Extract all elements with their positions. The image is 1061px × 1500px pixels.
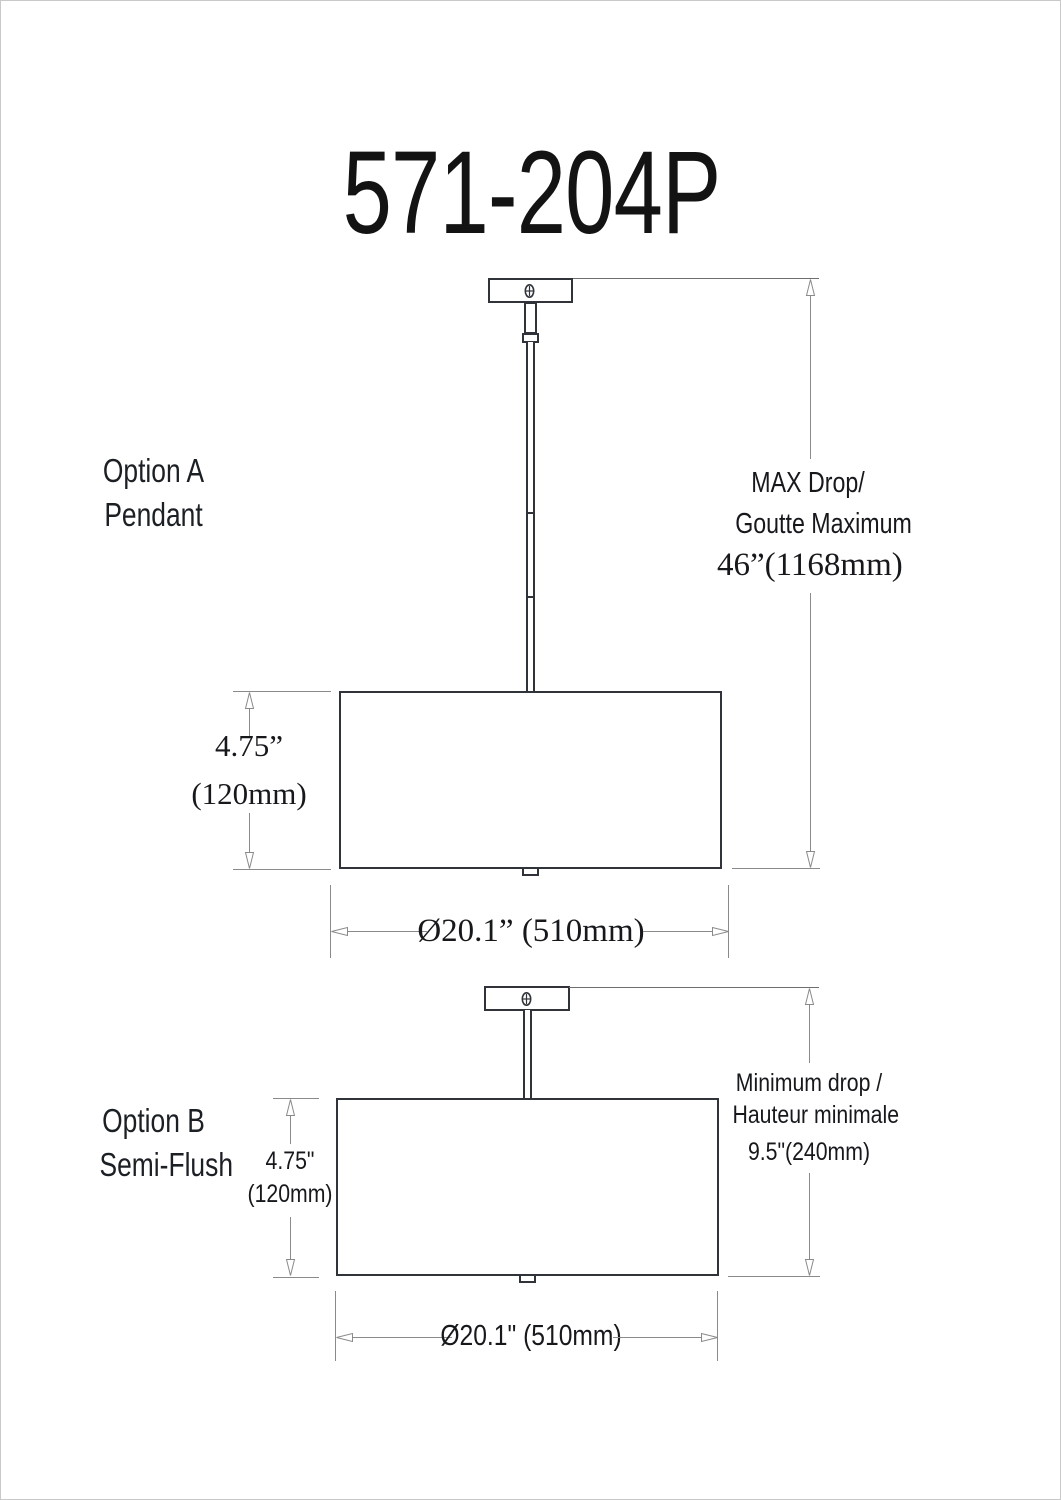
option-a-label-line1: Option A: [100, 449, 208, 493]
extension-line: [335, 1291, 336, 1361]
dimension-line: [810, 593, 811, 853]
dimension-line: [809, 1173, 810, 1259]
extension-line: [273, 1277, 319, 1278]
extension-line: [233, 869, 331, 870]
rod-joint: [526, 596, 535, 598]
arrow-up-icon: [804, 988, 815, 1005]
finial-a: [522, 867, 539, 876]
extension-line: [273, 1098, 319, 1099]
dimension-line: [290, 1116, 291, 1144]
arrow-left-icon: [336, 1332, 353, 1343]
drum-shade-a: [339, 691, 722, 869]
extension-line: [717, 1291, 718, 1361]
extension-line: [330, 885, 331, 958]
arrow-left-icon: [331, 926, 348, 937]
max-drop-value: 46”(1168mm): [717, 547, 899, 584]
model-number-title: 571-204P: [134, 127, 930, 259]
arrow-down-icon: [285, 1259, 296, 1276]
option-a-label: Option A Pendant: [100, 449, 208, 537]
screw-icon: [524, 284, 535, 298]
finial-b: [519, 1274, 536, 1283]
arrow-up-icon: [285, 1099, 296, 1116]
arrow-up-icon: [805, 279, 816, 296]
dimension-line: [249, 813, 250, 853]
rod-joint: [526, 512, 535, 514]
dimension-line: [613, 1337, 703, 1338]
drum-shade-b: [336, 1098, 719, 1276]
dimension-line: [643, 931, 713, 932]
max-drop-line2: Goutte Maximum: [735, 508, 881, 541]
extension-line: [728, 885, 729, 958]
arrow-down-icon: [805, 851, 816, 868]
min-drop-line2: Hauteur minimale: [733, 1101, 886, 1130]
stem-connector-a: [524, 302, 537, 334]
height-dim-b-inches: 4.75": [248, 1147, 333, 1176]
arrow-right-icon: [712, 926, 729, 937]
extension-line: [728, 1276, 820, 1277]
option-b-label-line1: Option B: [100, 1099, 208, 1143]
arrow-up-icon: [244, 692, 255, 709]
arrow-down-icon: [804, 1259, 815, 1276]
dimension-line: [809, 1005, 810, 1063]
option-b-label: Option B Semi-Flush: [100, 1099, 208, 1187]
option-a-label-line2: Pendant: [100, 493, 208, 537]
option-b-label-line2: Semi-Flush: [100, 1143, 208, 1187]
min-drop-line1: Minimum drop /: [733, 1069, 886, 1098]
height-dim-a-mm: (120mm): [189, 776, 309, 812]
extension-line: [732, 868, 820, 869]
height-dim-a-inches: 4.75”: [189, 728, 309, 764]
hang-rod-a: [526, 342, 535, 692]
diameter-dim-b: Ø20.1" (510mm): [421, 1320, 642, 1353]
arrow-right-icon: [701, 1332, 718, 1343]
min-drop-value: 9.5"(240mm): [733, 1138, 886, 1167]
spec-sheet-page: 571-204P Option A Pendant 4.75” (120mm): [0, 0, 1061, 1500]
screw-icon: [521, 992, 532, 1006]
diameter-dim-a: Ø20.1” (510mm): [401, 913, 661, 950]
dimension-line: [290, 1217, 291, 1259]
extension-line: [573, 278, 819, 279]
dimension-line: [810, 296, 811, 459]
max-drop-line1: MAX Drop/: [735, 467, 881, 500]
arrow-down-icon: [244, 852, 255, 869]
height-dim-b-mm: (120mm): [248, 1180, 333, 1209]
hang-rod-b: [523, 1010, 532, 1098]
extension-line: [569, 987, 819, 988]
